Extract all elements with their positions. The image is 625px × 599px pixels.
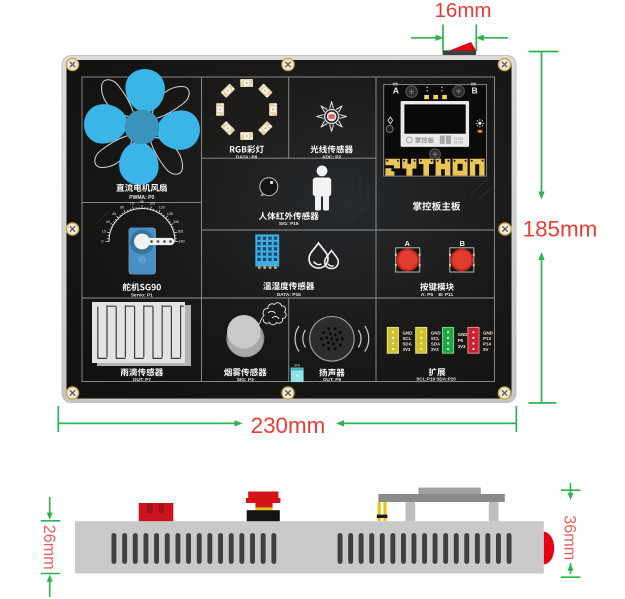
svg-text:26mm: 26mm [40, 525, 58, 570]
svg-text:P6: P6 [458, 338, 464, 343]
svg-text:B: B [472, 85, 478, 95]
svg-text:GND: GND [458, 332, 468, 337]
svg-text:180: 180 [179, 240, 185, 244]
svg-text:90: 90 [140, 200, 144, 204]
svg-text:75: 75 [130, 202, 134, 206]
svg-text:SCL:P19 SDA:P20: SCL:P19 SDA:P20 [416, 377, 456, 382]
svg-text:3V3: 3V3 [403, 347, 411, 352]
svg-text:Servo: P1: Servo: P1 [131, 293, 153, 299]
svg-text:GND: GND [431, 330, 441, 335]
svg-text:5V: 5V [483, 347, 488, 352]
svg-text:P14: P14 [483, 341, 491, 346]
svg-text:A: A [405, 239, 411, 248]
svg-text:A: A [393, 86, 399, 96]
svg-text:105: 105 [149, 202, 155, 206]
svg-text:SIG: P3: SIG: P3 [237, 377, 254, 383]
svg-text:3V3: 3V3 [294, 364, 300, 368]
svg-text:135: 135 [167, 212, 173, 216]
svg-text:165: 165 [177, 230, 183, 234]
svg-text:30: 30 [106, 220, 110, 224]
svg-text:150: 150 [173, 220, 179, 224]
svg-text:B: B [460, 239, 466, 248]
svg-text:OUT: P9: OUT: P9 [323, 377, 342, 383]
svg-text:SDA: SDA [431, 341, 441, 346]
svg-text:15: 15 [102, 230, 106, 234]
svg-text:3V3: 3V3 [458, 344, 466, 349]
svg-text:3V3: 3V3 [431, 347, 439, 352]
svg-text:230mm: 230mm [251, 413, 326, 438]
svg-text:60: 60 [120, 206, 124, 210]
svg-text:0: 0 [102, 240, 104, 244]
svg-text:185mm: 185mm [523, 217, 598, 242]
svg-text:SIG: P15: SIG: P15 [279, 221, 299, 227]
svg-text:SDA: SDA [403, 341, 413, 346]
svg-text:45: 45 [112, 212, 116, 216]
svg-text:P13: P13 [483, 336, 491, 341]
svg-text:*: * [296, 375, 299, 382]
svg-text:SCL: SCL [403, 336, 412, 341]
svg-text:36mm: 36mm [560, 515, 578, 560]
svg-text:A: P5 B: P11: A: P5 B: P11 [421, 292, 454, 298]
svg-text:GND: GND [483, 330, 493, 335]
svg-text:56789: 56789 [454, 141, 464, 145]
svg-text:DATA: P8: DATA: P8 [236, 154, 258, 160]
svg-text:GND: GND [403, 330, 413, 335]
svg-text:DATA: P16: DATA: P16 [277, 292, 301, 298]
svg-text:SCL: SCL [431, 336, 440, 341]
svg-text:120: 120 [159, 206, 165, 210]
svg-text:16mm: 16mm [435, 0, 492, 22]
svg-text:OUT: P7: OUT: P7 [133, 377, 152, 383]
svg-text:ADC: P2: ADC: P2 [322, 154, 342, 160]
